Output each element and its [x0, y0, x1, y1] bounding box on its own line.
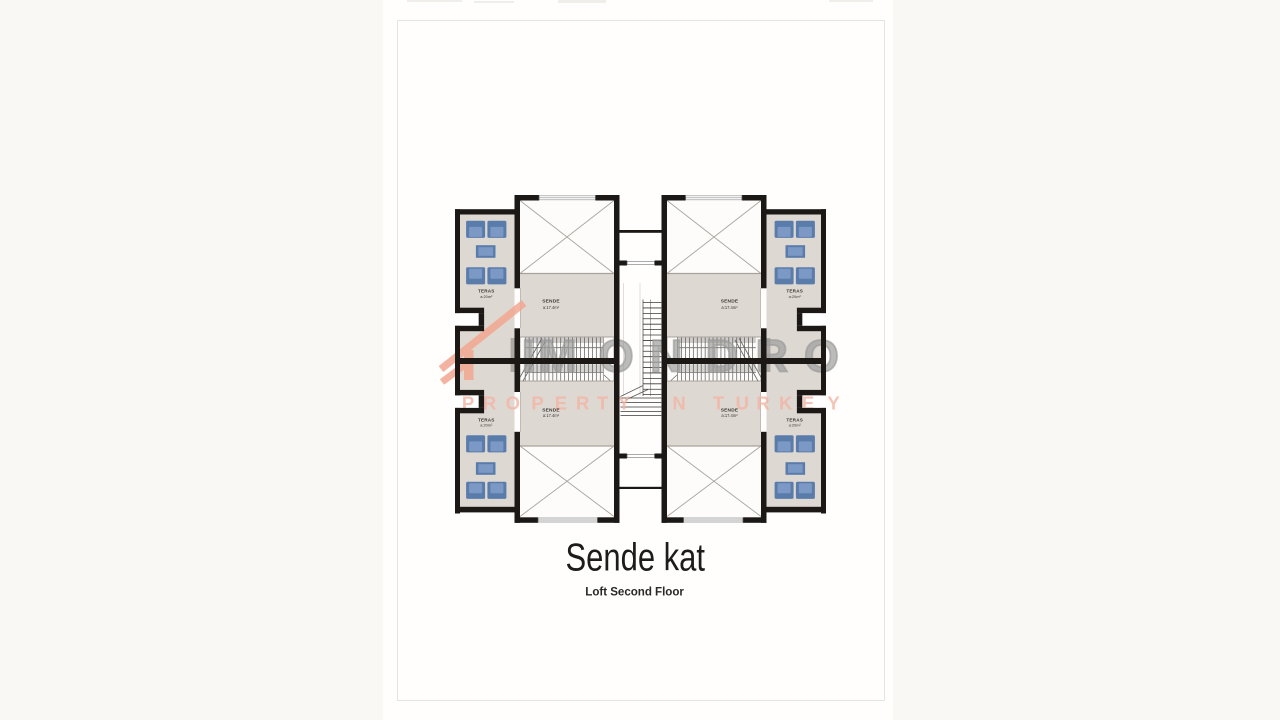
svg-text:a:17.4m²: a:17.4m²	[721, 305, 738, 310]
svg-text:Y: Y	[827, 393, 840, 414]
svg-text:a:20m²: a:20m²	[480, 294, 493, 299]
svg-text:T: T	[597, 393, 609, 414]
svg-text:K: K	[779, 393, 793, 414]
svg-text:N: N	[672, 393, 685, 414]
svg-text:R: R	[483, 393, 496, 414]
svg-text:Sende kat: Sende kat	[566, 537, 706, 580]
svg-text:a:17.4m²: a:17.4m²	[543, 413, 560, 418]
svg-text:D: D	[706, 331, 739, 382]
svg-text:R: R	[756, 331, 789, 382]
svg-text:a:20m²: a:20m²	[480, 423, 493, 428]
svg-text:SENDE: SENDE	[721, 299, 739, 305]
svg-text:a:17.4m²: a:17.4m²	[721, 413, 738, 418]
svg-text:R: R	[576, 393, 589, 414]
svg-text:R: R	[756, 393, 769, 414]
svg-text:a:17.4m²: a:17.4m²	[543, 305, 560, 310]
svg-text:a:20m²: a:20m²	[789, 294, 802, 299]
svg-text:TERAS: TERAS	[478, 289, 495, 294]
svg-text:TERAS: TERAS	[786, 289, 803, 294]
svg-text:Loft Second Floor: Loft Second Floor	[585, 586, 684, 599]
svg-text:M: M	[539, 331, 577, 382]
svg-text:I: I	[522, 331, 535, 382]
svg-text:TERAS: TERAS	[786, 417, 803, 422]
svg-text:a:20m²: a:20m²	[789, 423, 802, 428]
svg-text:TERAS: TERAS	[478, 417, 495, 422]
svg-text:O: O	[506, 393, 520, 414]
svg-text:Y: Y	[618, 393, 631, 414]
svg-text:SENDE: SENDE	[542, 299, 560, 305]
